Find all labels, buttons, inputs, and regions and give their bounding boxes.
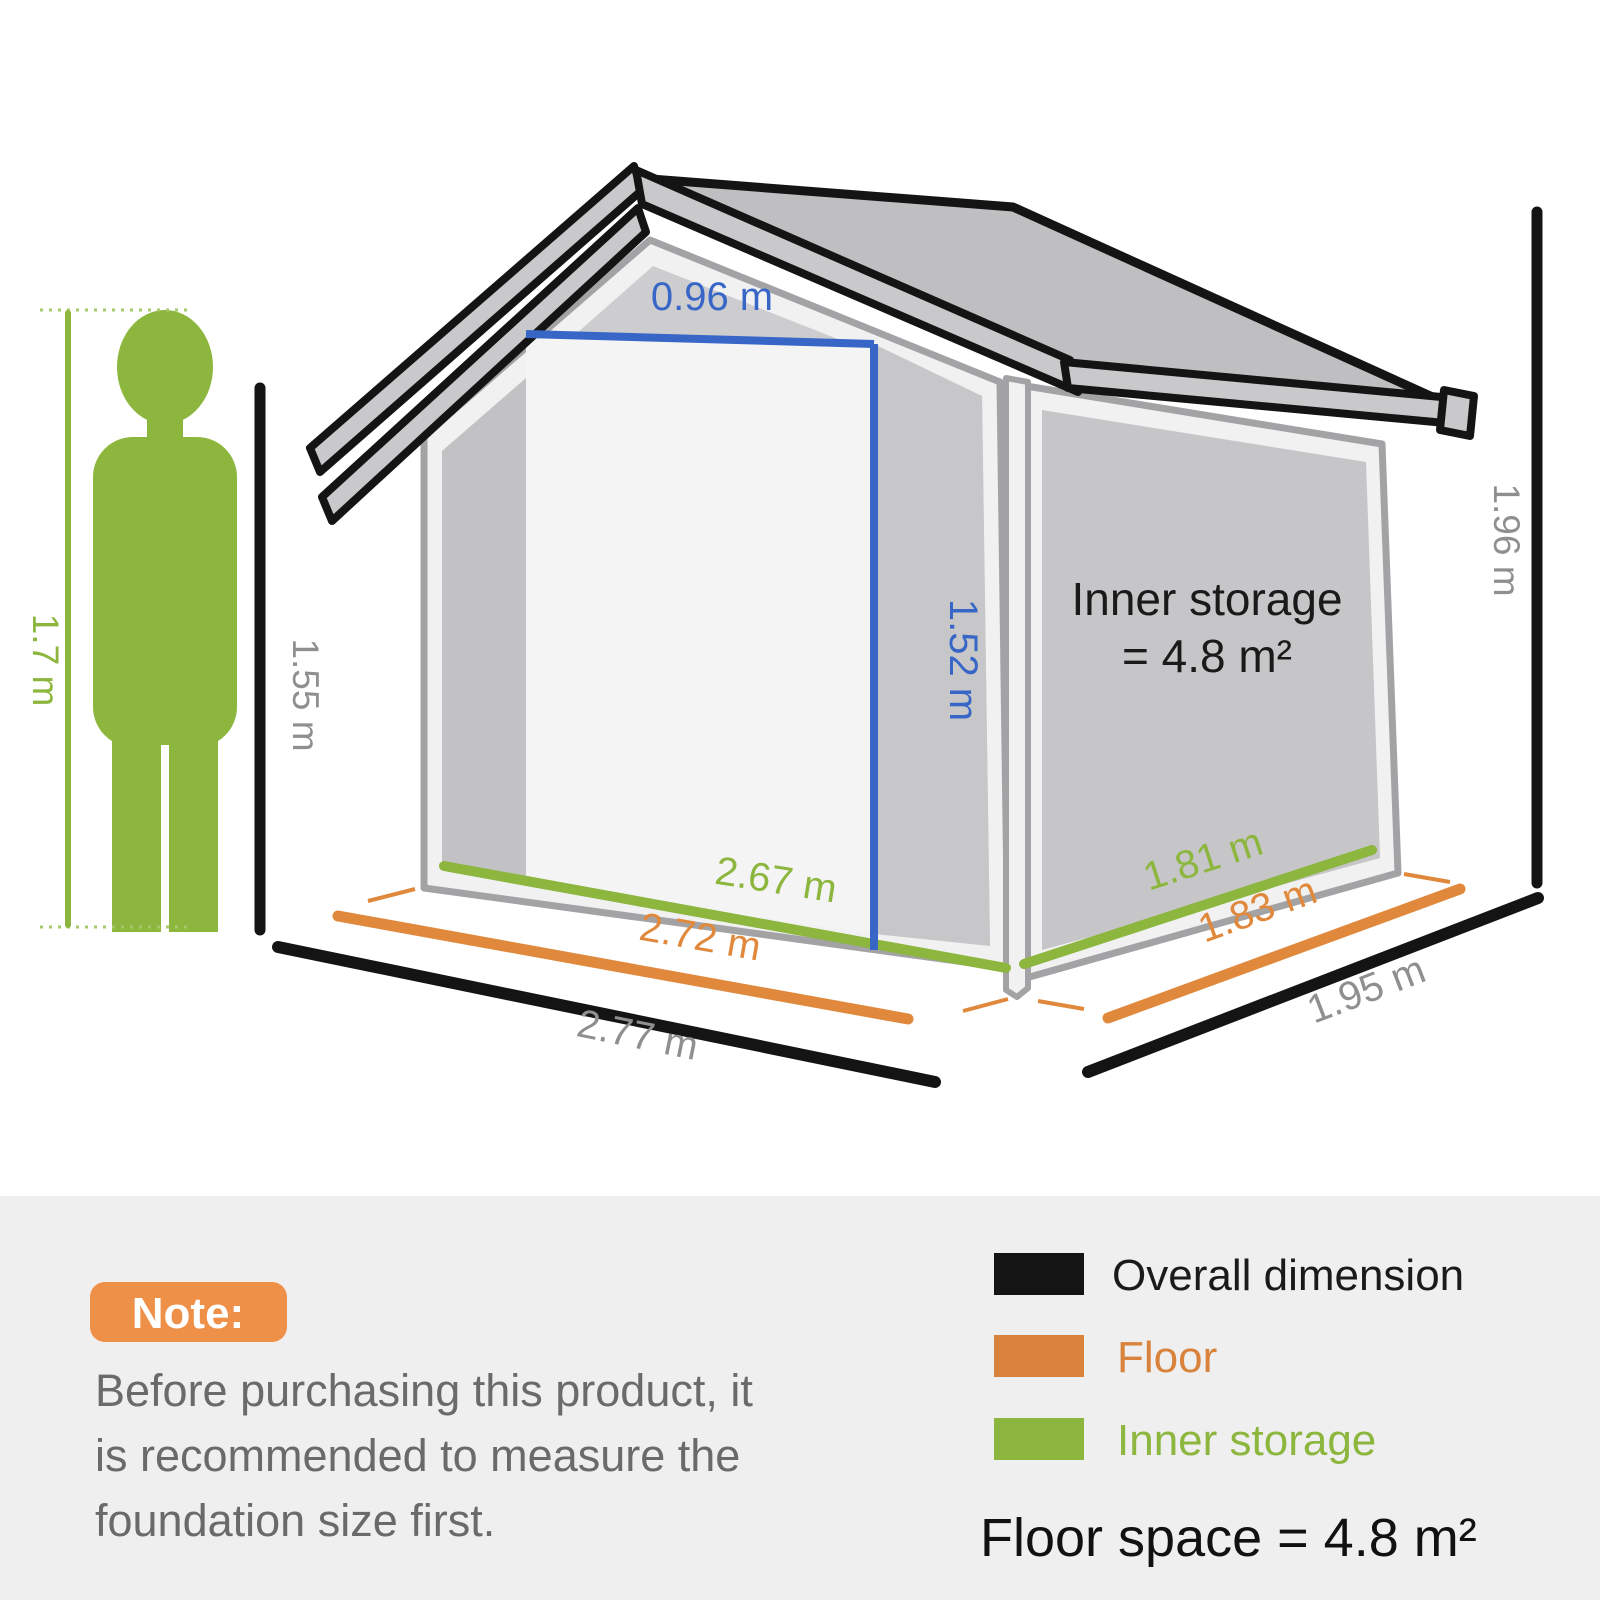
floor-tick-corner-right	[1038, 1001, 1084, 1009]
door-width-label: 0.96 m	[651, 275, 773, 319]
legend-label-floor: Floor	[1117, 1333, 1217, 1382]
shed-right-wall	[1026, 386, 1398, 978]
shed-dimension-diagram-page: 1.7 m 1.55 m 1.96 m	[0, 0, 1600, 1600]
note-line-3: foundation size first.	[95, 1495, 495, 1546]
person-height-label: 1.7 m	[25, 614, 66, 707]
corner-post	[1006, 378, 1028, 997]
door-left-reveal	[442, 378, 526, 884]
overall-height-measure: 1.96 m	[1486, 212, 1537, 883]
floor-tick-far-right	[1404, 874, 1450, 882]
person-head	[117, 310, 213, 424]
floor-space-total: Floor space = 4.8 m²	[980, 1508, 1477, 1568]
legend-swatch-floor	[994, 1335, 1084, 1377]
inner-storage-text-line1: Inner storage	[1071, 573, 1342, 625]
door-opening	[526, 334, 874, 934]
legend-swatch-overall	[994, 1253, 1084, 1295]
note-badge-text: Note:	[132, 1289, 244, 1338]
overall-width-label: 2.77 m	[573, 1002, 702, 1069]
door-height-label: 1.52 m	[941, 599, 985, 721]
person-leg-divider	[161, 745, 169, 932]
note-line-1: Before purchasing this product, it	[95, 1365, 753, 1416]
inner-storage-text-line2: = 4.8 m²	[1122, 630, 1292, 682]
floor-tick-front-left	[368, 889, 415, 901]
overall-height-label: 1.96 m	[1486, 483, 1527, 596]
bottom-panel: Note: Before purchasing this product, it…	[0, 1196, 1600, 1600]
diagram-canvas: 1.7 m 1.55 m 1.96 m	[0, 0, 1600, 1600]
legend-label-inner-storage: Inner storage	[1117, 1416, 1376, 1465]
front-wall-height-label: 1.55 m	[285, 638, 326, 751]
legend-label-overall: Overall dimension	[1112, 1251, 1464, 1300]
note-line-2: is recommended to measure the	[95, 1430, 740, 1481]
floor-tick-corner-left	[963, 999, 1008, 1011]
legend-swatch-inner-storage	[994, 1418, 1084, 1460]
person-silhouette	[93, 310, 237, 932]
roof-eave-end-cap	[1440, 390, 1474, 436]
